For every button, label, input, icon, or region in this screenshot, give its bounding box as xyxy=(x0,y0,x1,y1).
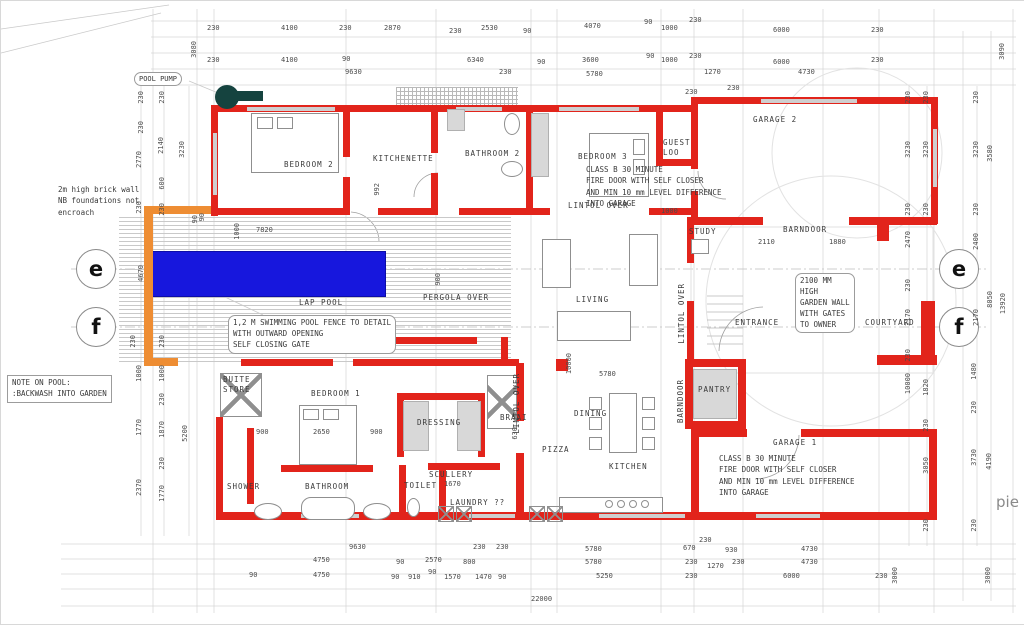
note-line: WITH OUTWARD OPENING xyxy=(233,329,391,340)
window xyxy=(761,99,857,103)
stove-plate xyxy=(641,500,649,508)
toilet-fixture xyxy=(504,113,520,135)
room-label-shower: SHOWER xyxy=(227,483,260,491)
label-barndoor-vertical: BARNDOOR xyxy=(677,379,685,423)
wall-segment xyxy=(656,105,663,163)
dim: 5780 xyxy=(585,546,602,554)
wall-segment xyxy=(516,453,524,519)
laundry-appliance xyxy=(438,506,454,522)
dim: 2870 xyxy=(384,25,401,33)
dim: 2770 xyxy=(136,151,144,168)
note-line: CLASS B 30 MINUTE xyxy=(719,453,854,464)
pool-fence-note: 1,2 M SWIMMING POOL FENCE TO DETAIL WITH… xyxy=(228,315,396,354)
dim: 3000 xyxy=(892,567,900,584)
pool-backwash-note: NOTE ON POOL: :BACKWASH INTO GARDEN xyxy=(7,375,112,403)
dim: 1870 xyxy=(159,421,167,438)
dim: 230 xyxy=(875,573,888,581)
note-line: TO OWNER xyxy=(800,320,850,331)
dim: 90 xyxy=(498,574,506,582)
dim: 600 xyxy=(159,177,167,190)
dim: 230 xyxy=(159,393,167,406)
dim: 2530 xyxy=(481,25,498,33)
wall-segment xyxy=(687,301,694,363)
basin xyxy=(254,503,282,520)
dim: 5780 xyxy=(585,559,602,567)
pillow xyxy=(323,409,339,420)
room-label-garage1: GARAGE 1 xyxy=(773,439,817,447)
wall-segment xyxy=(459,208,534,215)
label-lintol-over-vertical: LINTOL OVER xyxy=(678,283,686,344)
dim: 230 xyxy=(138,91,146,104)
dim: 230 xyxy=(207,25,220,33)
grid-marker-e-right: e xyxy=(939,249,979,289)
dim: 90 xyxy=(537,59,545,67)
garden-wall xyxy=(921,301,935,363)
appliance xyxy=(547,506,563,522)
dim: 230 xyxy=(496,544,509,552)
dim: 1000 xyxy=(234,223,242,240)
dim: 230 xyxy=(689,53,702,61)
dim: 7820 xyxy=(256,227,273,235)
note-line: CLASS B 30 MINUTE xyxy=(586,164,721,175)
dim: 10000 xyxy=(905,373,913,394)
dim: 6000 xyxy=(783,573,800,581)
dim: 3080 xyxy=(191,41,199,58)
dim: 1000 xyxy=(159,365,167,382)
room-label-braai: BRAAI xyxy=(500,414,528,422)
dim: 230 xyxy=(689,17,702,25)
note-line: 2m high brick wall xyxy=(58,184,139,195)
dim: 10000 xyxy=(566,353,574,374)
dim: 2140 xyxy=(158,137,166,154)
dim: 930 xyxy=(725,547,738,555)
dim: 3090 xyxy=(999,43,1007,60)
garden-wall xyxy=(877,217,889,241)
window xyxy=(599,514,685,518)
note-line: WITH GATES xyxy=(800,309,850,320)
room-label-scullery: SCULLERY xyxy=(429,471,473,479)
chair xyxy=(589,437,602,450)
window xyxy=(469,514,515,518)
dim: 4730 xyxy=(798,69,815,77)
room-label-living: LIVING xyxy=(576,296,609,304)
dim: 4100 xyxy=(281,25,298,33)
dim: 2470 xyxy=(905,231,913,248)
dim: 230 xyxy=(339,25,352,33)
toilet-fixture xyxy=(407,498,420,517)
note-line: FIRE DOOR WITH SELF CLOSER xyxy=(719,464,854,475)
wall-segment xyxy=(281,465,373,472)
wall-segment xyxy=(378,208,436,215)
basin xyxy=(501,161,523,177)
wall-segment xyxy=(738,359,746,429)
kitchenette-unit xyxy=(447,109,465,131)
fire-door-note-garage2: CLASS B 30 MINUTE FIRE DOOR WITH SELF CL… xyxy=(586,164,721,209)
dim: 90 xyxy=(644,19,652,27)
wall-segment xyxy=(691,429,699,520)
pillow xyxy=(257,117,273,129)
note-line: 1,2 M SWIMMING POOL FENCE TO DETAIL xyxy=(233,318,391,329)
window xyxy=(933,129,937,187)
dim: 90 xyxy=(523,28,531,36)
dim: 992 xyxy=(374,183,382,196)
room-label-buite-store: STORE xyxy=(223,386,251,394)
dim: 2170 xyxy=(905,309,913,326)
note-line: INTO GARAGE xyxy=(586,198,721,209)
dim: 1000 xyxy=(661,57,678,65)
dim: 230 xyxy=(923,419,931,432)
dim: 3050 xyxy=(923,457,931,474)
chair xyxy=(589,417,602,430)
wall-segment xyxy=(479,359,519,366)
dim: 1270 xyxy=(704,69,721,77)
dim: 230 xyxy=(727,85,740,93)
label-lintol-over-vertical: LINTOL OVER xyxy=(513,373,521,434)
room-label-guest-loo: LOO xyxy=(663,149,680,157)
fire-door-note-garage1: CLASS B 30 MINUTE FIRE DOOR WITH SELF CL… xyxy=(719,453,854,498)
pillow xyxy=(633,139,645,155)
wall-segment xyxy=(431,173,438,215)
dim: 230 xyxy=(973,91,981,104)
note-line: INTO GARAGE xyxy=(719,487,854,498)
dim: 230 xyxy=(973,203,981,216)
dim: 230 xyxy=(923,203,931,216)
room-label-kitchenette: KITCHENETTE xyxy=(373,155,434,163)
dim: 230 xyxy=(130,335,138,348)
dim: 230 xyxy=(159,335,167,348)
laundry-appliance xyxy=(456,506,472,522)
dim: 5200 xyxy=(182,425,190,442)
dim: 230 xyxy=(871,57,884,65)
dim: 230 xyxy=(699,537,712,545)
dim: 3000 xyxy=(985,567,993,584)
chair xyxy=(642,417,655,430)
study-desk xyxy=(691,239,709,254)
appliance xyxy=(529,506,545,522)
wall-segment xyxy=(691,429,747,437)
dim: 1770 xyxy=(136,419,144,436)
wall-segment xyxy=(801,429,937,437)
dim: 2370 xyxy=(136,479,144,496)
room-label-bathroom: BATHROOM xyxy=(305,483,349,491)
dim: 90 xyxy=(396,559,404,567)
dim: 8050 xyxy=(987,291,995,308)
lap-pool xyxy=(151,251,386,297)
dim: 230 xyxy=(732,559,745,567)
bath-tub xyxy=(301,497,355,520)
room-label-toilet: TOILET xyxy=(404,482,437,490)
note-line: NOTE ON POOL: xyxy=(12,378,107,389)
pillow xyxy=(277,117,293,129)
stove-plate xyxy=(617,500,625,508)
room-label-dining: DINING xyxy=(574,410,607,418)
dim: 230 xyxy=(449,28,462,36)
label-pergola-over: PERGOLA OVER xyxy=(423,294,489,302)
dim: 3230 xyxy=(923,141,931,158)
dim: 6000 xyxy=(773,27,790,35)
wall-segment xyxy=(216,417,223,519)
room-label-bedroom1: BEDROOM 1 xyxy=(311,390,361,398)
wall-segment xyxy=(241,359,333,366)
brick-wall-note: 2m high brick wall NB foundations not en… xyxy=(58,184,139,218)
dim: 4750 xyxy=(313,572,330,580)
note-line: AND MIN 10 mm LEVEL DIFFERENCE xyxy=(586,187,721,198)
note-line: GARDEN WALL xyxy=(800,298,850,309)
wall-segment xyxy=(247,428,254,504)
room-label-bedroom2: BEDROOM 2 xyxy=(284,161,334,169)
note-line: AND MIN 10 mm LEVEL DIFFERENCE xyxy=(719,476,854,487)
dim: 3230 xyxy=(905,141,913,158)
garden-wall-note: 2100 MM HIGH GARDEN WALL WITH GATES TO O… xyxy=(795,273,855,333)
window xyxy=(213,133,217,195)
pool-pump-icon xyxy=(237,91,263,101)
dim: 4100 xyxy=(281,57,298,65)
wall-segment xyxy=(685,359,693,429)
floor-plan-sheet: BEDROOM 2 KITCHENETTE BATHROOM 2 BEDROOM… xyxy=(0,0,1024,625)
dim: 900 xyxy=(370,429,383,437)
dim: 800 xyxy=(463,559,476,567)
sofa xyxy=(542,239,571,288)
dim: 1270 xyxy=(707,563,724,571)
dim: 1570 xyxy=(444,574,461,582)
room-label-kitchen: KITCHEN xyxy=(609,463,648,471)
wall-segment xyxy=(685,359,745,367)
wall-segment xyxy=(431,105,438,153)
dim: 9630 xyxy=(349,544,366,552)
dim: 9630 xyxy=(345,69,362,77)
dim: 90 xyxy=(199,213,207,221)
dining-table xyxy=(609,393,637,453)
dim: 230 xyxy=(207,57,220,65)
dim: 4730 xyxy=(801,559,818,567)
wall-segment xyxy=(211,208,349,215)
wall-segment xyxy=(353,359,479,366)
wall-segment xyxy=(929,429,937,520)
window xyxy=(559,107,639,111)
room-label-study: STUDY xyxy=(689,228,717,236)
dim: 230 xyxy=(685,573,698,581)
dim: 90 xyxy=(391,574,399,582)
dim: 1880 xyxy=(829,239,846,247)
label-entrance: ENTRANCE xyxy=(735,319,779,327)
dim: 230 xyxy=(138,121,146,134)
note-line: encroach xyxy=(58,207,139,218)
room-label-pantry: PANTRY xyxy=(698,386,731,394)
pillow xyxy=(303,409,319,420)
dim: 630 xyxy=(512,427,520,440)
dim: 670 xyxy=(683,545,696,553)
wardrobe xyxy=(531,113,549,177)
dim: 3580 xyxy=(987,145,995,162)
dim: 3730 xyxy=(971,449,979,466)
dim: 230 xyxy=(685,559,698,567)
dim: 4750 xyxy=(313,557,330,565)
label-lap-pool: LAP POOL xyxy=(299,299,343,307)
sofa xyxy=(629,234,658,286)
dim: 2570 xyxy=(425,557,442,565)
entrance-paving-hatch xyxy=(396,87,518,107)
dim: 1000 xyxy=(136,365,144,382)
note-line: NB foundations not xyxy=(58,195,139,206)
wall-segment xyxy=(343,105,350,157)
dim: 90 xyxy=(249,572,257,580)
dim: 230 xyxy=(923,91,931,104)
boundary-wall xyxy=(144,206,218,214)
dim: 22000 xyxy=(531,596,552,604)
wall-segment xyxy=(428,463,500,470)
wall-segment xyxy=(849,217,937,225)
dim: 2650 xyxy=(313,429,330,437)
dim: 90 xyxy=(428,569,436,577)
dim: 2170 xyxy=(973,309,981,326)
basin xyxy=(363,503,391,520)
room-label-garage2: GARAGE 2 xyxy=(753,116,797,124)
note-line: :BACKWASH INTO GARDEN xyxy=(12,389,107,400)
dim: 900 xyxy=(256,429,269,437)
wall-segment xyxy=(691,217,763,225)
boundary-wall xyxy=(144,206,153,366)
chair xyxy=(642,397,655,410)
dim: 4190 xyxy=(986,453,994,470)
dim: 230 xyxy=(971,401,979,414)
dim: 230 xyxy=(971,519,979,532)
sheet-text-fragment: pie xyxy=(996,493,1019,511)
dim: 1670 xyxy=(444,481,461,489)
note-line: FIRE DOOR WITH SELF CLOSER xyxy=(586,175,721,186)
room-label-laundry: LAUNDRY ?? xyxy=(450,499,505,507)
note-line: 2100 MM xyxy=(800,276,850,287)
window xyxy=(247,107,335,111)
room-label-dressing: DRESSING xyxy=(417,419,461,427)
room-label-pizza: PIZZA xyxy=(542,446,570,454)
wall-segment xyxy=(397,393,485,400)
dim: 13920 xyxy=(1000,293,1008,314)
coffee-table xyxy=(557,311,631,341)
grid-marker-f-left: f xyxy=(76,307,116,347)
dim: 230 xyxy=(905,203,913,216)
dim: 900 xyxy=(435,273,443,286)
dim: 90 xyxy=(342,56,350,64)
dim: 6000 xyxy=(773,59,790,67)
dim: 230 xyxy=(905,279,913,292)
wall-segment xyxy=(534,208,550,215)
note-line: SELF CLOSING GATE xyxy=(233,340,391,351)
dim: 230 xyxy=(159,91,167,104)
dim: 4070 xyxy=(584,23,601,31)
dim: 90 xyxy=(646,53,654,61)
dim: 3600 xyxy=(582,57,599,65)
room-label-buite-store: BUITE xyxy=(223,376,251,384)
dim: 1000 xyxy=(661,208,678,216)
stove-plate xyxy=(605,500,613,508)
chair xyxy=(642,437,655,450)
dim: 3230 xyxy=(973,141,981,158)
dim: 230 xyxy=(923,519,931,532)
dim: 230 xyxy=(905,349,913,362)
dim: 1820 xyxy=(923,379,931,396)
dim: 230 xyxy=(159,203,167,216)
dim: 910 xyxy=(408,574,421,582)
dim: 3230 xyxy=(179,141,187,158)
stove-plate xyxy=(629,500,637,508)
dim: 230 xyxy=(473,544,486,552)
note-line: HIGH xyxy=(800,287,850,298)
dim: 1480 xyxy=(971,363,979,380)
dim: 230 xyxy=(871,27,884,35)
dim: 6340 xyxy=(467,57,484,65)
dim: 230 xyxy=(905,91,913,104)
dim: 5780 xyxy=(586,71,603,79)
dim: 5250 xyxy=(596,573,613,581)
label-barndoor: BARNDOOR xyxy=(783,226,827,234)
dim: 2110 xyxy=(758,239,775,247)
dim: 230 xyxy=(685,89,698,97)
pool-pump-callout: POOL PUMP xyxy=(134,72,182,86)
wall-segment xyxy=(691,97,698,169)
room-label-bathroom2: BATHROOM 2 xyxy=(465,150,520,158)
window xyxy=(756,514,820,518)
room-label-guest-loo: GUEST xyxy=(663,139,691,147)
dim: 2400 xyxy=(973,233,981,250)
dim: 230 xyxy=(159,457,167,470)
wall-segment xyxy=(343,177,350,215)
dim: 1470 xyxy=(475,574,492,582)
wall-segment xyxy=(685,421,745,429)
dim: 230 xyxy=(499,69,512,77)
dim: 1000 xyxy=(661,25,678,33)
grid-marker-e-left: e xyxy=(76,249,116,289)
room-label-bedroom3: BEDROOM 3 xyxy=(578,153,628,161)
dim: 4730 xyxy=(801,546,818,554)
dim: 5780 xyxy=(599,371,616,379)
pool-pump-icon xyxy=(215,85,239,109)
dim: 230 xyxy=(136,201,144,214)
dim: 1770 xyxy=(159,485,167,502)
dim: 4670 xyxy=(138,265,146,282)
